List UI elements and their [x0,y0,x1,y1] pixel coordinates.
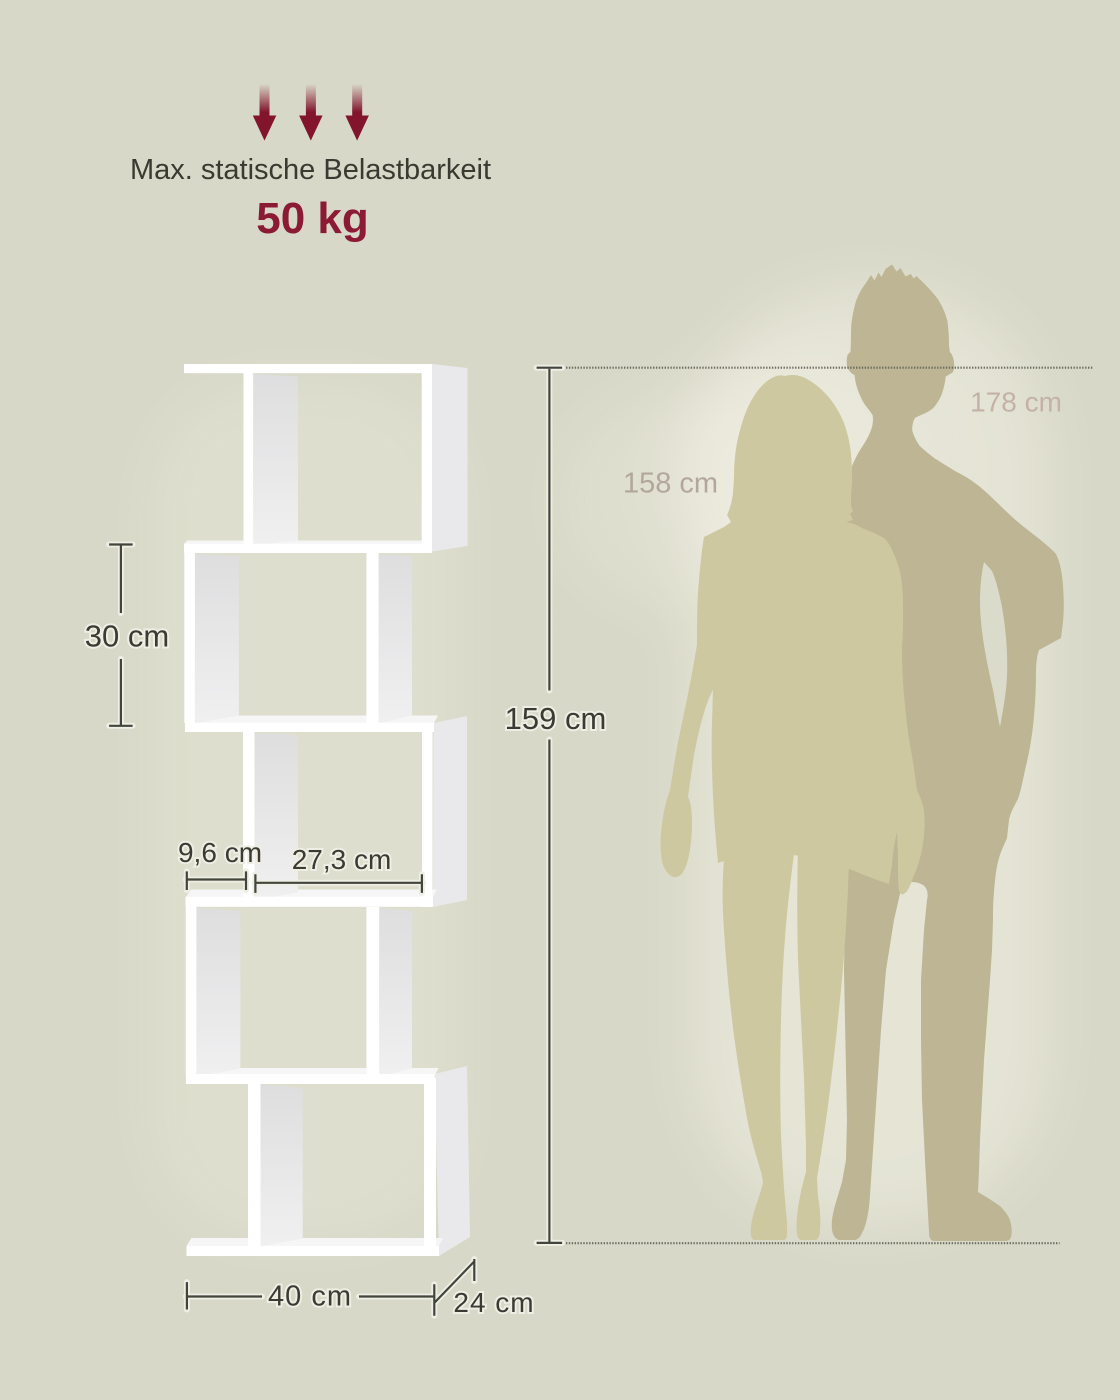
svg-text:9,6 cm: 9,6 cm [178,837,262,868]
svg-text:159 cm: 159 cm [505,701,607,736]
svg-text:158 cm: 158 cm [623,468,718,500]
svg-text:178 cm: 178 cm [970,387,1062,418]
svg-text:27,3 cm: 27,3 cm [292,844,392,875]
svg-text:24 cm: 24 cm [453,1287,534,1318]
svg-text:30 cm: 30 cm [85,619,169,654]
svg-text:40 cm: 40 cm [268,1281,352,1313]
svg-text:Max. statische Belastbarkeit: Max. statische Belastbarkeit [130,154,491,186]
svg-text:50 kg: 50 kg [256,194,369,243]
